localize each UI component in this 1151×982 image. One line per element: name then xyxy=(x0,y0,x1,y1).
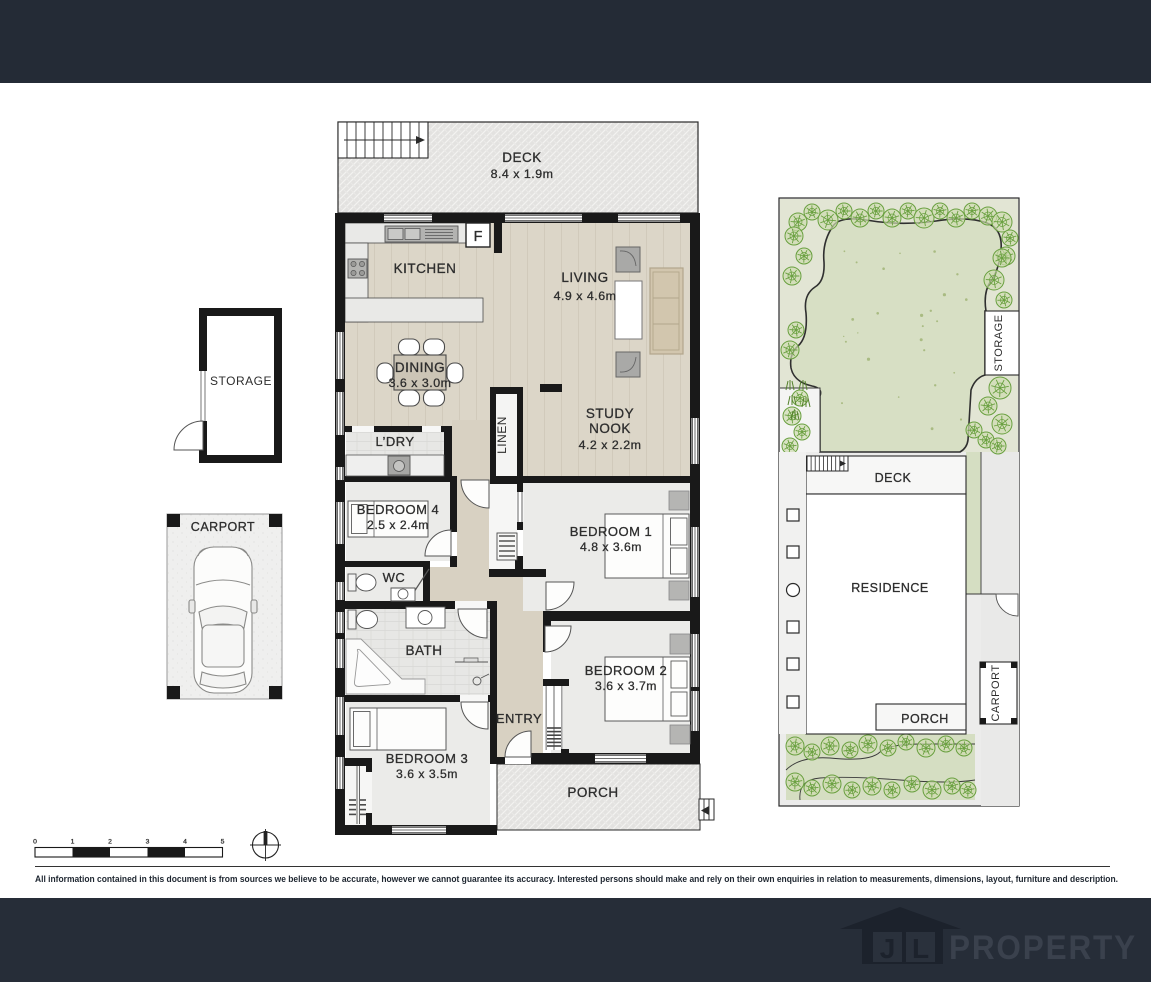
svg-text:DINING: DINING xyxy=(395,360,445,375)
svg-text:L: L xyxy=(912,933,929,964)
svg-text:CARPORT: CARPORT xyxy=(191,520,255,534)
svg-text:F: F xyxy=(474,229,483,245)
svg-text:8.4 x 1.9m: 8.4 x 1.9m xyxy=(491,167,554,181)
svg-text:2.5 x 2.4m: 2.5 x 2.4m xyxy=(367,518,429,532)
svg-text:3.6 x 3.7m: 3.6 x 3.7m xyxy=(595,679,657,693)
svg-text:STORAGE: STORAGE xyxy=(993,314,1005,371)
svg-text:LINEN: LINEN xyxy=(495,416,509,454)
svg-text:BEDROOM 3: BEDROOM 3 xyxy=(386,751,469,766)
svg-text:KITCHEN: KITCHEN xyxy=(394,261,457,276)
svg-text:DECK: DECK xyxy=(875,471,912,485)
svg-text:PORCH: PORCH xyxy=(567,785,618,800)
svg-text:LIVING: LIVING xyxy=(561,270,608,285)
svg-text:BEDROOM 2: BEDROOM 2 xyxy=(585,663,668,678)
svg-text:PROPERTY: PROPERTY xyxy=(949,929,1137,967)
svg-text:3.6 x 3.0m: 3.6 x 3.0m xyxy=(389,376,452,390)
svg-text:ENTRY: ENTRY xyxy=(496,711,542,726)
svg-text:4.9 x 4.6m: 4.9 x 4.6m xyxy=(554,289,617,303)
svg-text:STUDY: STUDY xyxy=(586,406,634,421)
svg-text:WC: WC xyxy=(383,570,406,585)
svg-text:All information contained in t: All information contained in this docume… xyxy=(35,873,1118,884)
svg-text:5: 5 xyxy=(221,839,225,846)
svg-text:1: 1 xyxy=(71,839,75,846)
svg-text:3.6 x 3.5m: 3.6 x 3.5m xyxy=(396,767,458,781)
svg-text:BEDROOM 4: BEDROOM 4 xyxy=(357,502,440,517)
svg-text:NOOK: NOOK xyxy=(589,421,631,436)
svg-text:4.8 x 3.6m: 4.8 x 3.6m xyxy=(580,540,642,554)
svg-text:L’DRY: L’DRY xyxy=(375,434,414,449)
svg-text:0: 0 xyxy=(33,839,37,846)
svg-text:CARPORT: CARPORT xyxy=(990,664,1002,721)
svg-text:PORCH: PORCH xyxy=(901,712,949,726)
svg-text:STORAGE: STORAGE xyxy=(210,374,272,388)
svg-text:BATH: BATH xyxy=(405,643,442,658)
svg-text:DECK: DECK xyxy=(502,150,542,165)
svg-text:3: 3 xyxy=(146,839,150,846)
svg-text:RESIDENCE: RESIDENCE xyxy=(851,581,928,595)
svg-text:J: J xyxy=(880,933,896,964)
svg-text:BEDROOM 1: BEDROOM 1 xyxy=(570,524,653,539)
svg-text:2: 2 xyxy=(108,839,112,846)
svg-text:4: 4 xyxy=(183,839,187,846)
svg-text:4.2 x 2.2m: 4.2 x 2.2m xyxy=(579,438,642,452)
